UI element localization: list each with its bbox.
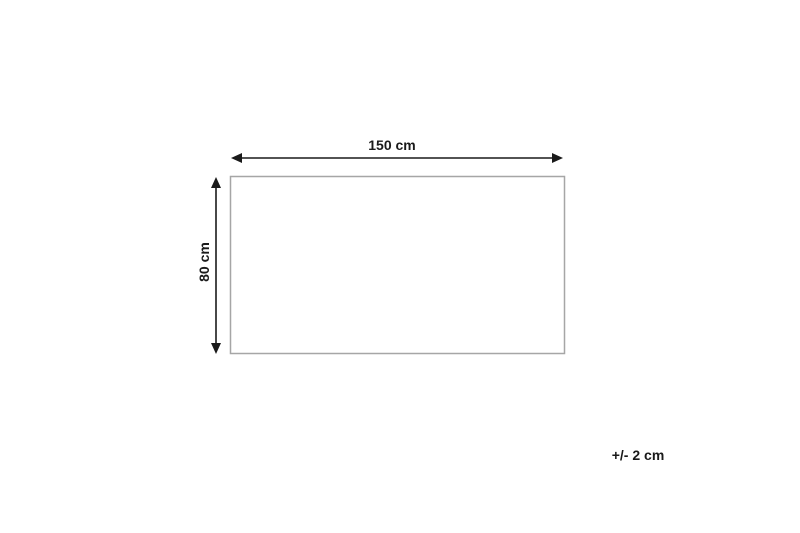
height-dimension-arrow bbox=[211, 177, 221, 354]
height-dimension-label: 80 cm bbox=[196, 242, 212, 282]
tolerance-label: +/- 2 cm bbox=[612, 447, 665, 463]
width-arrowhead-right-icon bbox=[552, 153, 563, 163]
width-dimension-label: 150 cm bbox=[368, 137, 415, 153]
dimension-diagram: 150 cm 80 cm +/- 2 cm bbox=[0, 0, 800, 533]
height-arrowhead-top-icon bbox=[211, 177, 221, 188]
product-outline-rect bbox=[231, 177, 565, 354]
diagram-svg: 150 cm 80 cm +/- 2 cm bbox=[0, 0, 800, 533]
height-arrowhead-bottom-icon bbox=[211, 343, 221, 354]
width-dimension-arrow bbox=[231, 153, 563, 163]
width-arrowhead-left-icon bbox=[231, 153, 242, 163]
